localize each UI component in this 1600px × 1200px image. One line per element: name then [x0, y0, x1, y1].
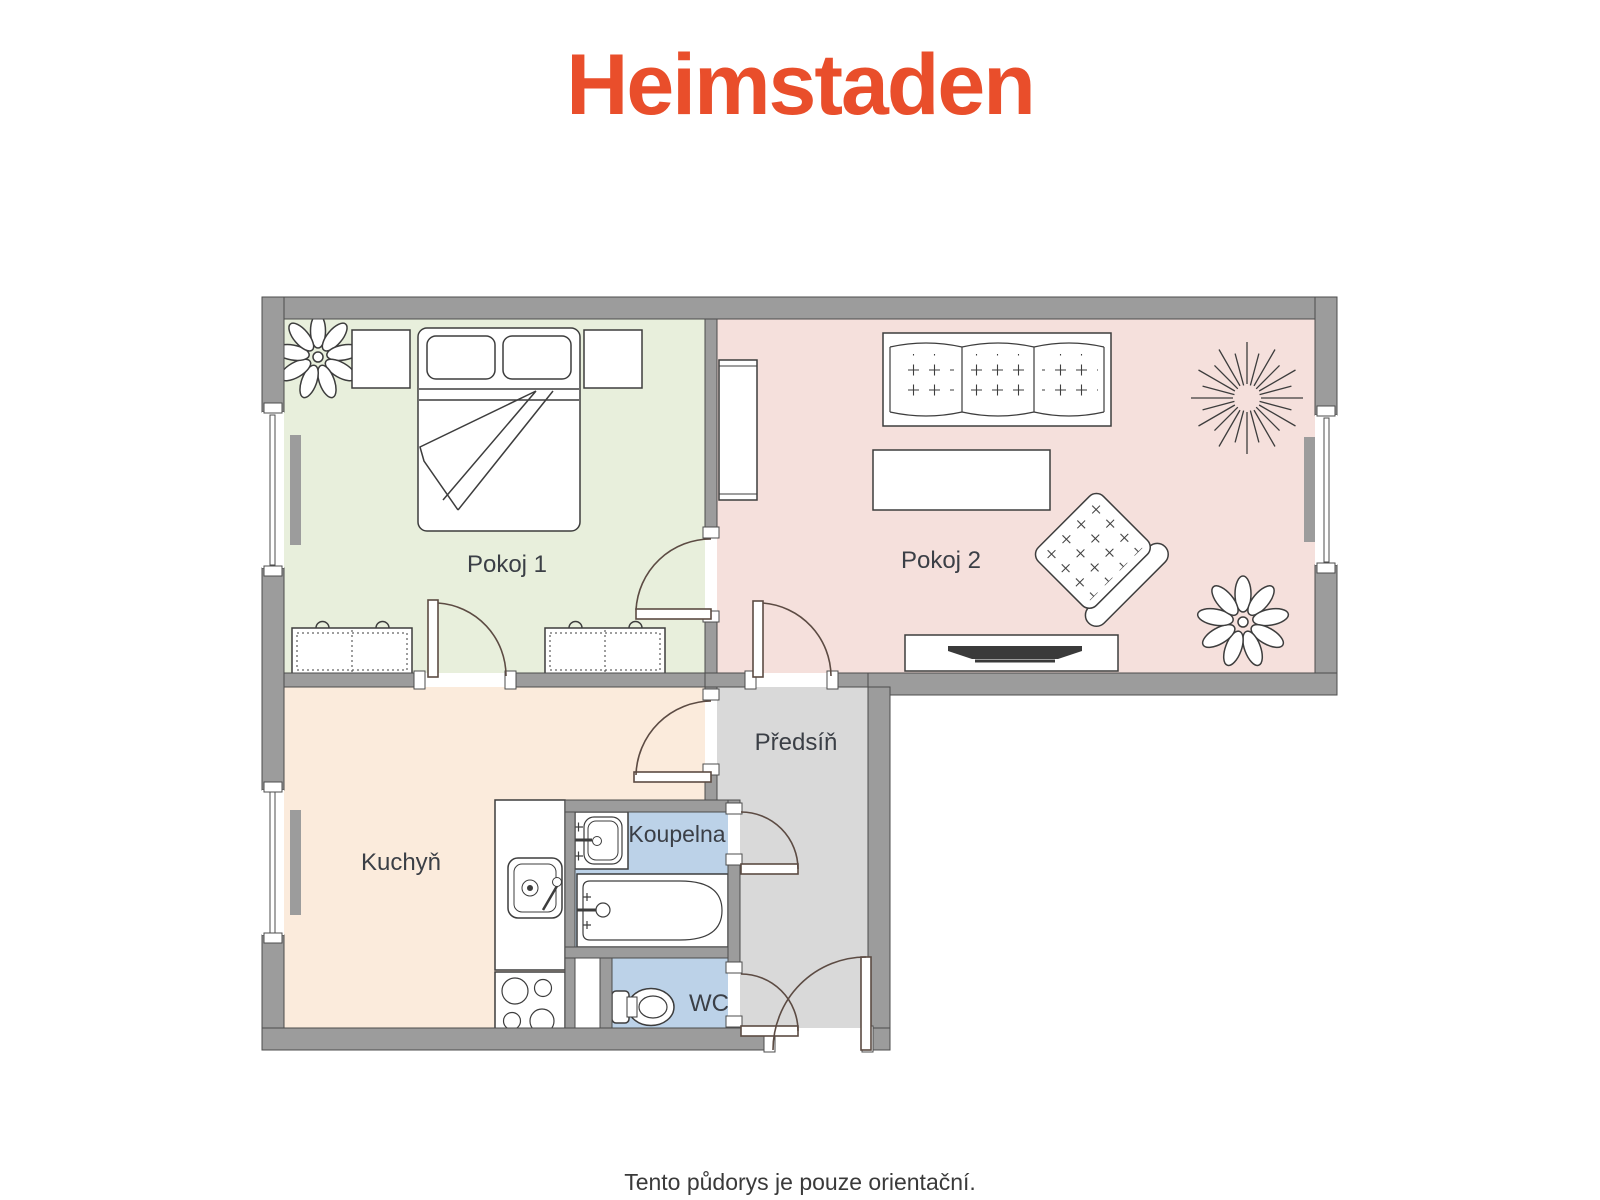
bed	[418, 328, 580, 531]
radiator-pokoj2	[1304, 437, 1315, 542]
footer-note: Tento půdorys je pouze orientační.	[624, 1169, 976, 1195]
wardrobe-1	[292, 622, 412, 676]
pillow-left	[427, 336, 495, 379]
label-koupelna: Koupelna	[628, 821, 725, 847]
coffee-table	[873, 450, 1050, 510]
bathtub	[577, 874, 728, 947]
logo: Heimstaden	[566, 37, 1034, 133]
wardrobe-2	[545, 622, 665, 676]
kitchen-sink	[508, 858, 562, 918]
toilet	[612, 989, 674, 1026]
nightstand-left	[352, 330, 410, 388]
radiator-pokoj1	[290, 435, 301, 545]
nightstand-right	[584, 330, 642, 388]
page: Heimstaden	[0, 0, 1600, 1200]
radiator-kuchyn	[290, 810, 301, 915]
sofa	[883, 333, 1111, 426]
stove	[495, 972, 565, 1035]
label-predsin: Předsíň	[755, 729, 838, 756]
washbasin	[572, 812, 628, 869]
label-wc: WC	[689, 990, 729, 1017]
label-pokoj1: Pokoj 1	[467, 551, 547, 578]
tv-stand	[905, 635, 1118, 671]
floor-plan: Heimstaden	[0, 0, 1600, 1200]
tv	[948, 646, 1082, 659]
wardrobe-tall	[719, 360, 757, 500]
label-pokoj2: Pokoj 2	[901, 547, 981, 574]
shaft	[575, 958, 600, 1028]
pillow-right	[503, 336, 571, 379]
label-kuchyn: Kuchyň	[361, 849, 441, 876]
fixtures-kitchen	[495, 800, 565, 1035]
